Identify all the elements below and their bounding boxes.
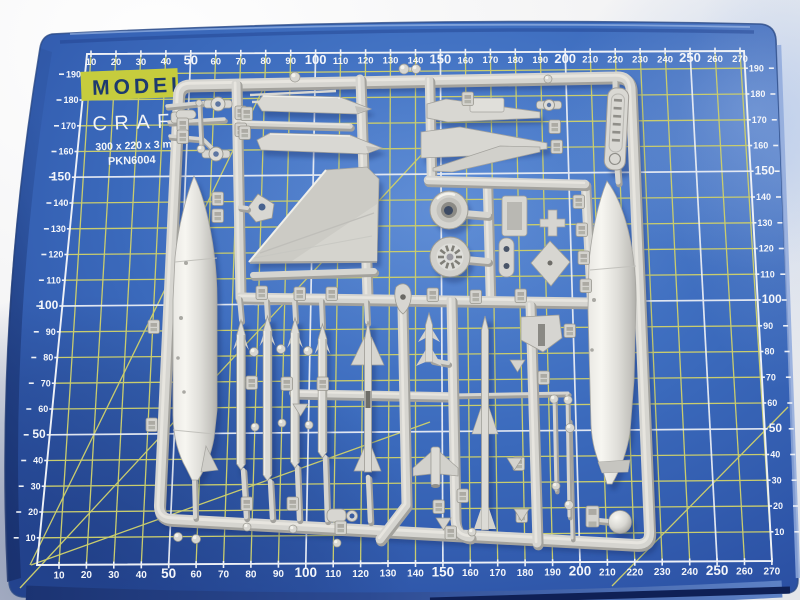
svg-text:270: 270 xyxy=(732,54,748,65)
svg-text:90: 90 xyxy=(285,56,296,67)
svg-text:130: 130 xyxy=(383,56,399,67)
svg-text:80: 80 xyxy=(260,56,271,67)
svg-text:210: 210 xyxy=(582,55,598,66)
svg-text:160: 160 xyxy=(753,141,768,151)
svg-text:120: 120 xyxy=(358,56,374,67)
svg-text:160: 160 xyxy=(462,568,479,579)
svg-text:220: 220 xyxy=(626,567,643,578)
svg-text:80: 80 xyxy=(245,569,257,580)
svg-text:30: 30 xyxy=(31,481,41,491)
svg-text:70: 70 xyxy=(236,56,247,67)
svg-text:10: 10 xyxy=(26,533,36,543)
svg-text:130: 130 xyxy=(757,218,772,228)
svg-text:90: 90 xyxy=(273,569,285,580)
svg-text:220: 220 xyxy=(607,55,623,66)
svg-text:180: 180 xyxy=(517,568,534,579)
svg-text:100: 100 xyxy=(38,298,58,312)
svg-text:100: 100 xyxy=(295,565,318,580)
svg-text:160: 160 xyxy=(58,147,73,157)
svg-text:20: 20 xyxy=(773,501,783,511)
svg-text:180: 180 xyxy=(63,95,78,105)
svg-text:130: 130 xyxy=(51,224,66,234)
svg-text:240: 240 xyxy=(681,567,698,578)
svg-text:110: 110 xyxy=(325,569,342,580)
svg-text:40: 40 xyxy=(136,570,148,581)
svg-text:30: 30 xyxy=(772,475,782,485)
svg-text:140: 140 xyxy=(756,192,771,202)
svg-text:10: 10 xyxy=(53,570,65,581)
svg-text:190: 190 xyxy=(544,568,561,579)
svg-text:250: 250 xyxy=(679,50,701,65)
svg-text:180: 180 xyxy=(750,89,765,99)
svg-text:50: 50 xyxy=(161,566,176,581)
svg-text:70: 70 xyxy=(218,570,230,581)
svg-text:110: 110 xyxy=(333,56,348,67)
svg-text:230: 230 xyxy=(654,567,671,578)
svg-text:190: 190 xyxy=(532,55,548,66)
svg-text:210: 210 xyxy=(599,567,616,578)
svg-text:30: 30 xyxy=(136,57,147,68)
svg-text:50: 50 xyxy=(184,53,198,68)
svg-text:80: 80 xyxy=(43,353,53,363)
svg-text:40: 40 xyxy=(33,456,43,466)
svg-text:PKN6004: PKN6004 xyxy=(108,154,157,168)
svg-text:190: 190 xyxy=(749,64,764,74)
svg-text:120: 120 xyxy=(759,244,774,254)
svg-text:40: 40 xyxy=(770,450,780,460)
svg-text:90: 90 xyxy=(46,327,56,337)
svg-text:170: 170 xyxy=(482,55,498,66)
svg-text:150: 150 xyxy=(432,564,455,579)
svg-text:70: 70 xyxy=(766,372,776,382)
svg-text:170: 170 xyxy=(752,115,767,125)
svg-text:50: 50 xyxy=(769,421,783,435)
svg-text:110: 110 xyxy=(760,269,775,279)
svg-text:260: 260 xyxy=(707,54,723,65)
svg-text:20: 20 xyxy=(111,57,122,68)
svg-text:250: 250 xyxy=(706,563,729,578)
svg-text:60: 60 xyxy=(211,56,222,67)
svg-text:150: 150 xyxy=(430,51,452,66)
svg-text:200: 200 xyxy=(554,51,576,66)
svg-text:90: 90 xyxy=(763,321,773,331)
svg-text:190: 190 xyxy=(66,70,81,80)
svg-text:170: 170 xyxy=(61,121,76,131)
svg-text:10: 10 xyxy=(774,527,784,537)
svg-text:120: 120 xyxy=(352,569,369,580)
svg-text:260: 260 xyxy=(736,567,753,578)
svg-text:150: 150 xyxy=(51,169,71,183)
svg-text:20: 20 xyxy=(28,507,38,517)
svg-text:140: 140 xyxy=(53,198,68,208)
svg-text:60: 60 xyxy=(767,398,777,408)
svg-text:270: 270 xyxy=(764,567,781,578)
svg-text:80: 80 xyxy=(765,347,775,357)
svg-text:160: 160 xyxy=(457,55,473,66)
svg-text:10: 10 xyxy=(86,57,97,68)
svg-text:70: 70 xyxy=(41,378,51,388)
svg-text:50: 50 xyxy=(32,427,46,441)
svg-text:30: 30 xyxy=(108,570,120,581)
svg-text:150: 150 xyxy=(755,163,775,177)
svg-text:170: 170 xyxy=(489,568,506,579)
svg-text:20: 20 xyxy=(81,570,93,581)
svg-text:40: 40 xyxy=(161,57,172,68)
svg-text:180: 180 xyxy=(507,55,523,66)
svg-text:110: 110 xyxy=(46,275,61,285)
svg-text:240: 240 xyxy=(657,54,673,65)
svg-text:120: 120 xyxy=(48,250,63,260)
svg-text:60: 60 xyxy=(191,570,203,581)
svg-text:230: 230 xyxy=(632,55,648,66)
svg-text:100: 100 xyxy=(762,292,782,306)
svg-text:200: 200 xyxy=(569,564,592,579)
svg-text:100: 100 xyxy=(305,52,327,67)
svg-text:140: 140 xyxy=(407,569,424,580)
svg-text:130: 130 xyxy=(380,569,397,580)
svg-text:60: 60 xyxy=(38,404,48,414)
